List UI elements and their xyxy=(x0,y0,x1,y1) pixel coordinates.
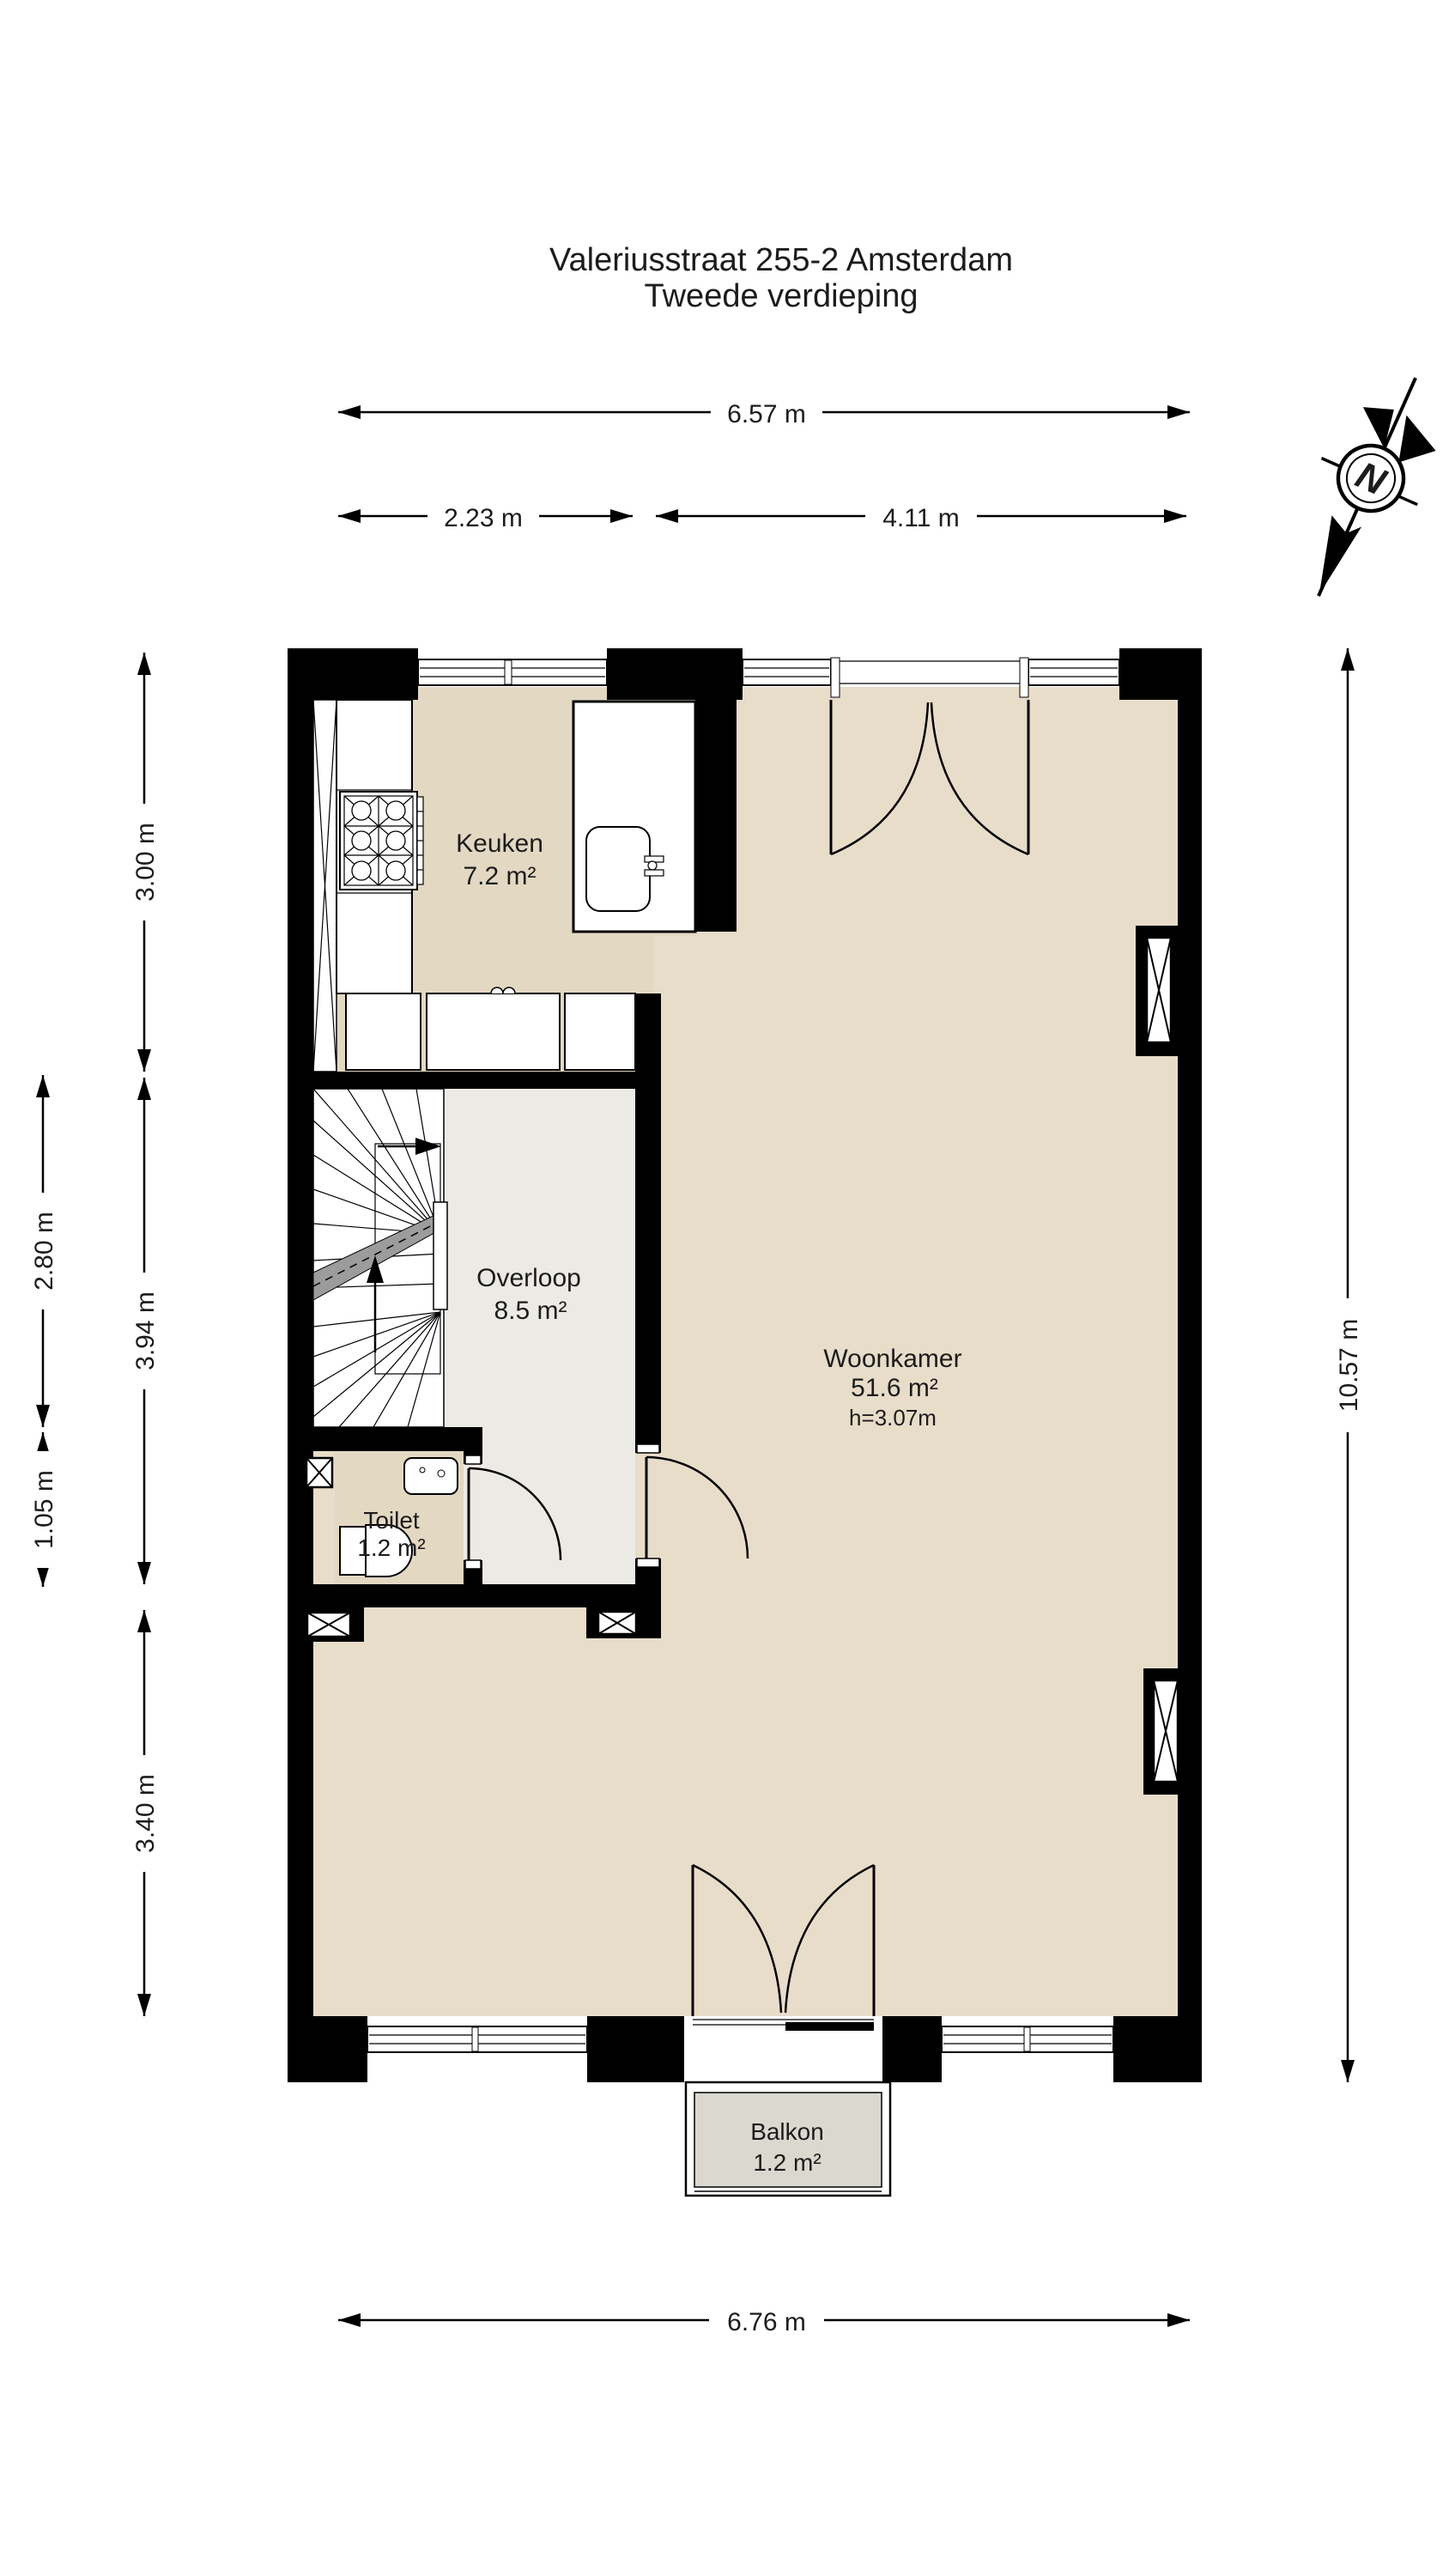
balkon-area: 1.2 m² xyxy=(753,2149,821,2176)
wall-right xyxy=(1178,648,1202,2082)
window-woonkamer-top-left xyxy=(743,659,831,685)
toilet-label: Toilet xyxy=(363,1507,420,1534)
title-floor: Tweede verdieping xyxy=(645,278,919,314)
windows-top xyxy=(418,659,1119,685)
title-address: Valeriusstraat 255-2 Amsterdam xyxy=(549,242,1013,278)
overloop-label: Overloop xyxy=(476,1264,581,1292)
stair-newel xyxy=(433,1202,447,1309)
dim-outer-toilet: 1.05 m xyxy=(24,1432,62,1587)
wall-overloop-bottom xyxy=(288,1584,661,1607)
wall-top-pier-left xyxy=(288,648,418,700)
wall-bottom-pier-right xyxy=(1113,2016,1202,2082)
floorplan-drawing: Valeriusstraat 255-2 Amsterdam Tweede ve… xyxy=(0,0,1449,2576)
wall-bottom-pier-midright xyxy=(882,2016,942,2082)
light-well-shaft xyxy=(313,700,336,1072)
dim-left-overloop: 3.94 m xyxy=(125,1078,163,1584)
shaft-xbox-right-upper xyxy=(1147,938,1171,1042)
window-bottom-left xyxy=(367,2026,587,2052)
svg-text:2.80 m: 2.80 m xyxy=(30,1212,58,1291)
stairs xyxy=(313,1089,447,1427)
window-kitchen xyxy=(418,659,607,685)
kitchen-counter-bottom-2 xyxy=(427,993,560,1070)
svg-text:6.57 m: 6.57 m xyxy=(727,400,806,428)
wall-bottom-pier-left xyxy=(288,2016,367,2082)
floorplan-page: Valeriusstraat 255-2 Amsterdam Tweede ve… xyxy=(0,0,1449,2576)
svg-text:3.40 m: 3.40 m xyxy=(131,1774,160,1853)
wall-overloop-woonkamer-upper xyxy=(635,993,661,1453)
svg-text:3.00 m: 3.00 m xyxy=(131,823,160,902)
shaft-xbox-toilet xyxy=(306,1458,332,1487)
svg-text:2.23 m: 2.23 m xyxy=(444,504,523,532)
woonkamer-label: Woonkamer xyxy=(823,1345,961,1373)
balkon-label: Balkon xyxy=(750,2118,824,2145)
dim-outer-stairs: 2.80 m xyxy=(24,1075,62,1427)
kitchen-counter-bottom-3 xyxy=(565,993,635,1070)
shaft-xbox-bottom-mid xyxy=(598,1612,636,1634)
dim-top-total: 6.57 m xyxy=(338,395,1190,429)
woonkamer-area: 51.6 m² xyxy=(851,1374,938,1402)
wall-kitchen-overloop xyxy=(288,1072,640,1089)
stove-icon xyxy=(340,792,423,890)
svg-text:6.76 m: 6.76 m xyxy=(727,2308,806,2336)
wall-kitchen-partition xyxy=(695,648,737,932)
toilet-area: 1.2 m² xyxy=(357,1534,425,1561)
svg-text:4.11 m: 4.11 m xyxy=(882,504,960,532)
woonkamer-height: h=3.07m xyxy=(849,1405,937,1431)
svg-text:1.05 m: 1.05 m xyxy=(30,1470,58,1549)
overloop-floor xyxy=(444,1089,635,1584)
svg-text:3.94 m: 3.94 m xyxy=(131,1291,160,1370)
overloop-area: 8.5 m² xyxy=(494,1297,567,1325)
dim-top-left-segment: 2.23 m xyxy=(338,499,633,533)
keuken-label: Keuken xyxy=(456,829,543,858)
dim-right-total: 10.57 m xyxy=(1329,648,1367,2082)
shaft-xbox-bottom-left xyxy=(307,1613,350,1637)
keuken-area: 7.2 m² xyxy=(463,862,536,890)
page-title: Valeriusstraat 255-2 Amsterdam Tweede ve… xyxy=(549,242,1013,314)
dim-left-kitchen: 3.00 m xyxy=(125,653,163,1072)
wall-top-pier-right xyxy=(1119,648,1202,700)
compass-icon: N xyxy=(1270,356,1449,617)
svg-text:10.57 m: 10.57 m xyxy=(1335,1319,1363,1412)
wall-toilet-top xyxy=(288,1427,482,1451)
dim-top-right-segment: 4.11 m xyxy=(656,499,1186,533)
window-bottom-right xyxy=(942,2026,1113,2052)
dim-bottom-total: 6.76 m xyxy=(338,2303,1190,2337)
toilet-sink-icon xyxy=(404,1458,458,1494)
window-woonkamer-top-right xyxy=(1028,659,1119,685)
kitchen-counter-bottom-1 xyxy=(346,993,421,1070)
wall-left xyxy=(288,648,313,2082)
balcony-door-sill xyxy=(785,2022,874,2031)
wall-bottom-pier-midleft xyxy=(587,2016,684,2082)
shaft-xbox-right-lower xyxy=(1154,1680,1178,1782)
dim-left-bottom: 3.40 m xyxy=(125,1610,163,2016)
